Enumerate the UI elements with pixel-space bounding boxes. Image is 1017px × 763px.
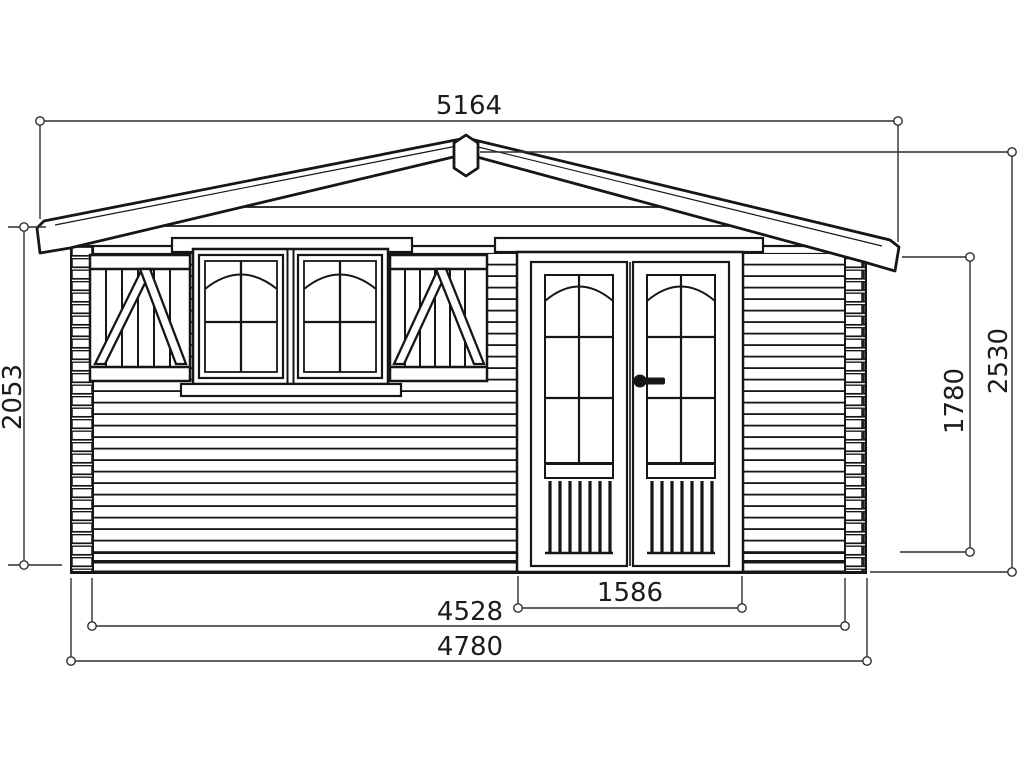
door-assembly <box>495 238 763 572</box>
left-casement <box>199 255 283 378</box>
left-shutter <box>90 255 190 381</box>
left-bargeboard <box>37 138 466 253</box>
elevation-drawing-canvas: 5164 2053 2530 1780 <box>0 0 1017 763</box>
ridge-finial <box>454 135 478 176</box>
dim-label-roof-width: 5164 <box>436 91 502 121</box>
door-lock-rail <box>545 464 613 478</box>
dim-label-wall-overall-width: 4780 <box>437 632 503 662</box>
right-shutter <box>390 255 487 381</box>
shed-building <box>37 135 899 573</box>
floor-beams <box>71 553 866 573</box>
bargeboard-edge-line <box>470 145 882 246</box>
dim-label-door-width: 1586 <box>597 578 663 608</box>
door-balusters <box>550 481 610 553</box>
casement-window <box>193 249 388 384</box>
shed-elevation-svg: 5164 2053 2530 1780 <box>0 0 1017 763</box>
window-sill <box>181 384 401 396</box>
dim-label-wall-inner-width: 4528 <box>437 597 503 627</box>
dim-label-eave-height: 1780 <box>940 368 970 434</box>
right-casement <box>298 255 382 378</box>
door-lintel <box>495 238 763 252</box>
door-balusters <box>652 481 712 553</box>
dimension-eave-height: 1780 <box>900 253 974 556</box>
dimension-left-wall-height: 2053 <box>0 223 62 569</box>
right-door <box>633 262 729 566</box>
door-lock-rail <box>647 464 715 478</box>
window-assembly <box>90 238 487 396</box>
dim-label-left-wall-height: 2053 <box>0 364 28 430</box>
bargeboard-edge-line <box>55 145 462 225</box>
dim-label-ridge-height: 2530 <box>984 328 1014 394</box>
dimension-wall-inner-width: 4528 <box>88 578 849 630</box>
dimension-door-width: 1586 <box>514 576 746 612</box>
left-door <box>531 262 627 566</box>
right-corner-logs <box>845 246 866 573</box>
